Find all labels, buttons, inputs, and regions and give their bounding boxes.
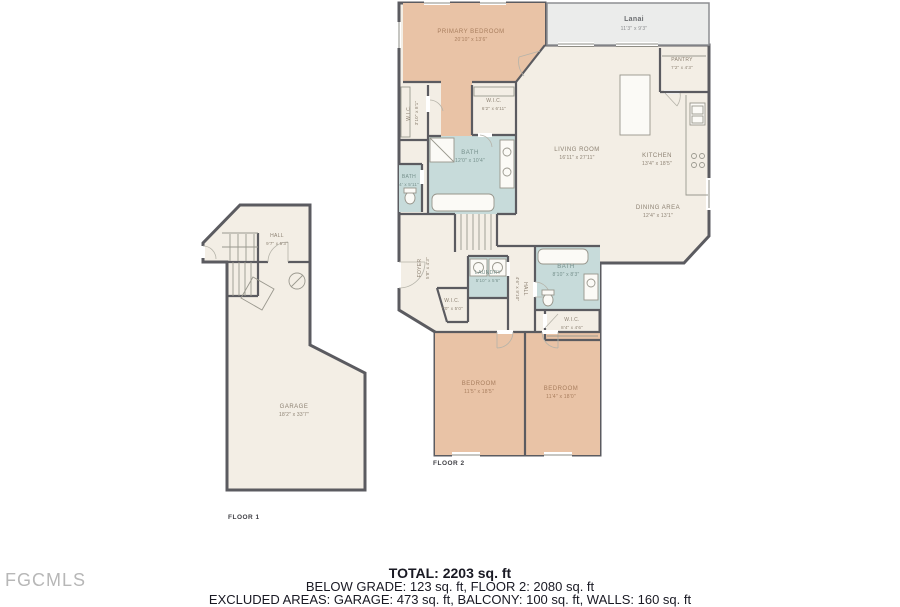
room-name: BATH: [399, 174, 419, 182]
room-name: HALL: [266, 233, 288, 241]
room-label-foyer: FOYER 5'8" x 4'3": [417, 257, 431, 279]
room-dims: 16'11" x 27'11": [554, 155, 600, 163]
kitchen-island: [620, 75, 650, 135]
room-label-bath2: BATH 8'10" x 8'3": [552, 263, 579, 280]
room-name: BATH: [552, 263, 579, 272]
room-name: HALL: [521, 277, 529, 302]
room-name: BEDROOM: [462, 380, 497, 389]
room-dims: 7'0" x 5'0": [441, 305, 463, 312]
room-label-wic-left: W.I.C. 3'10" x 8'1": [406, 101, 420, 126]
room-label-wic-primary: W.I.C. 6'2" x 6'11": [482, 98, 506, 112]
room-name: BATH: [455, 149, 485, 158]
room-label-wic-hall: W.I.C. 7'0" x 5'0": [441, 298, 463, 312]
room-name: W.I.C.: [406, 101, 414, 126]
floor1-plan: [201, 205, 365, 490]
room-name: PANTRY: [671, 57, 693, 65]
room-name: DINING AREA: [636, 204, 680, 213]
room-label-primary-bedroom: PRIMARY BEDROOM 20'10" x 13'6": [437, 28, 504, 45]
room-name: LIVING ROOM: [554, 146, 600, 155]
room-label-hall-floor1: HALL 9'7" x 5'3": [266, 233, 288, 247]
room-label-laundry: LAUNDRY 5'10" x 5'6": [475, 270, 501, 284]
floor1-outline: [203, 205, 365, 490]
room-dims: 3'10" x 8'1": [413, 101, 420, 126]
room-name: W.I.C.: [561, 317, 583, 325]
room-dims: 5'10" x 5'6": [475, 277, 501, 284]
room-label-pantry: PANTRY 7'2" x 4'3": [671, 57, 693, 71]
room-name: W.I.C.: [482, 98, 506, 106]
watermark-fgcmls: FGCMLS: [5, 570, 86, 591]
room-dims: 11'3" x 9'3": [621, 26, 648, 34]
room-label-bedroom2: BEDROOM 11'4" x 18'0": [544, 385, 579, 402]
room-name: PRIMARY BEDROOM: [437, 28, 504, 37]
floor1-door-gaps: [201, 246, 205, 258]
room-dims: 18'2" x 33'7": [279, 412, 309, 420]
room-dims: 6'2" x 6'11": [482, 105, 506, 112]
room-name: KITCHEN: [642, 152, 672, 161]
room-label-bedroom1: BEDROOM 11'5" x 18'5": [462, 380, 497, 397]
room-dims: 13'4" x 18'5": [642, 161, 672, 169]
room-label-living-room: LIVING ROOM 16'11" x 27'11": [554, 146, 600, 163]
room-dims: 4' x 5'11": [399, 181, 419, 188]
room-dims: 9'7" x 5'3": [266, 240, 288, 247]
room-name: GARAGE: [279, 403, 309, 412]
room-dims: 8'10" x 8'3": [552, 272, 579, 280]
room-name: BEDROOM: [544, 385, 579, 394]
room-name: Lanai: [621, 15, 648, 26]
room-label-garage: GARAGE 18'2" x 33'7": [279, 403, 309, 420]
room-dims: 5'8" x 4'3": [424, 257, 431, 279]
room-dims: 11'5" x 18'5": [462, 389, 497, 397]
room-label-wic2: W.I.C. 8'4" x 4'6": [561, 317, 583, 331]
room-dims: 20'10" x 13'6": [437, 37, 504, 45]
room-label-primary-bath: BATH 12'0" x 10'4": [455, 149, 485, 166]
room-dims: 11'4" x 18'0": [544, 394, 579, 402]
floor1-label: FLOOR 1: [228, 514, 260, 521]
room-dims: 12'0" x 10'4": [455, 158, 485, 166]
room-name: FOYER: [417, 257, 425, 279]
room-dims: 4'6" x 9'10": [514, 277, 521, 302]
room-label-dining-area: DINING AREA 12'4" x 13'1": [636, 204, 680, 221]
floor2-label: FLOOR 2: [433, 460, 465, 467]
room-label-small-bath: BATH 4' x 5'11": [399, 174, 419, 188]
room-dims: 12'4" x 13'1": [636, 213, 680, 221]
room-label-kitchen: KITCHEN 13'4" x 18'5": [642, 152, 672, 169]
room-dims: 7'2" x 4'3": [671, 64, 693, 71]
room-name: W.I.C.: [441, 298, 463, 306]
room-label-hall-upper: HALL 4'6" x 9'10": [514, 277, 528, 302]
room-dims: 8'4" x 4'6": [561, 324, 583, 331]
floorplan-page: PRIMARY BEDROOM 20'10" x 13'6" Lanai 11'…: [0, 0, 900, 599]
room-label-lanai: Lanai 11'3" x 9'3": [621, 15, 648, 33]
room-name: LAUNDRY: [475, 270, 501, 278]
excluded-areas-text: EXCLUDED AREAS: GARAGE: 473 sq. ft, BALC…: [209, 592, 691, 607]
bedroom-passage-fill: [441, 80, 472, 138]
